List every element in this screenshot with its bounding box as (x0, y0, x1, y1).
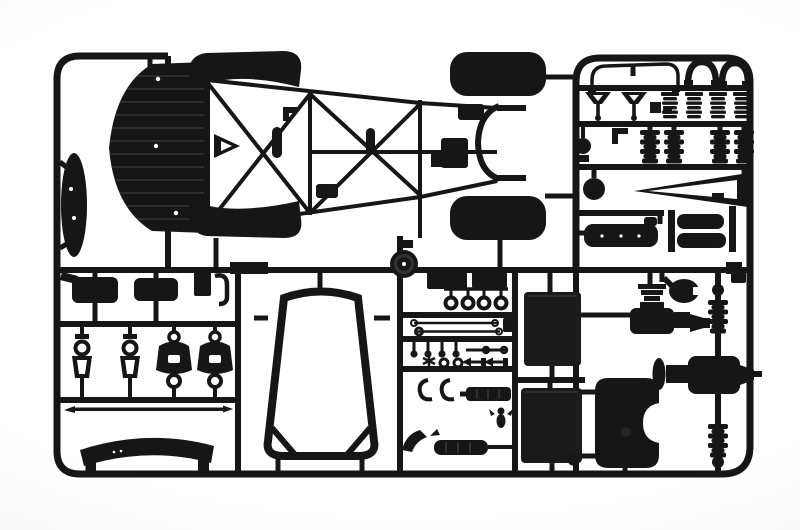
fender-rear-bottom-part (450, 196, 546, 240)
winged-pin-part (489, 408, 513, 429)
sprue-photo (0, 0, 800, 530)
rear-bulkhead-hoop (478, 106, 526, 179)
fender-rear-top-part (450, 52, 546, 96)
hook-part (215, 275, 227, 304)
towing-ring-parts (444, 289, 508, 309)
coil-spring-parts (661, 92, 751, 118)
pulley-disc-part (390, 250, 418, 278)
ball-joint-parts (575, 124, 628, 200)
windscreen-frame-part (254, 292, 390, 457)
bellows-boot-parts (640, 123, 754, 164)
mounting-plate-parts (427, 271, 507, 289)
oil-tank-parts (60, 271, 211, 303)
muffler-parts (668, 206, 736, 252)
c-clip-parts (420, 380, 454, 399)
tie-rod-part (64, 406, 233, 414)
ribbed-sleeve-part (466, 387, 511, 401)
cam-cover-part (584, 217, 658, 247)
gearbox-lower-part (653, 356, 763, 394)
suspension-upright-bell-parts (156, 324, 233, 400)
suspension-upright-open-parts (72, 324, 140, 400)
cockpit-cowl-part (80, 438, 214, 474)
sill-panel-part (61, 153, 87, 257)
wishbone-part (634, 173, 748, 207)
suspension-fork-parts (585, 92, 672, 121)
filler-cap-part (662, 276, 701, 303)
exhaust-tailpipe-part (402, 429, 515, 455)
sprue-photo-figure (0, 0, 800, 530)
stud-parts (462, 358, 508, 367)
arch-bracket-parts (688, 62, 748, 84)
steering-rod-parts (411, 320, 502, 335)
